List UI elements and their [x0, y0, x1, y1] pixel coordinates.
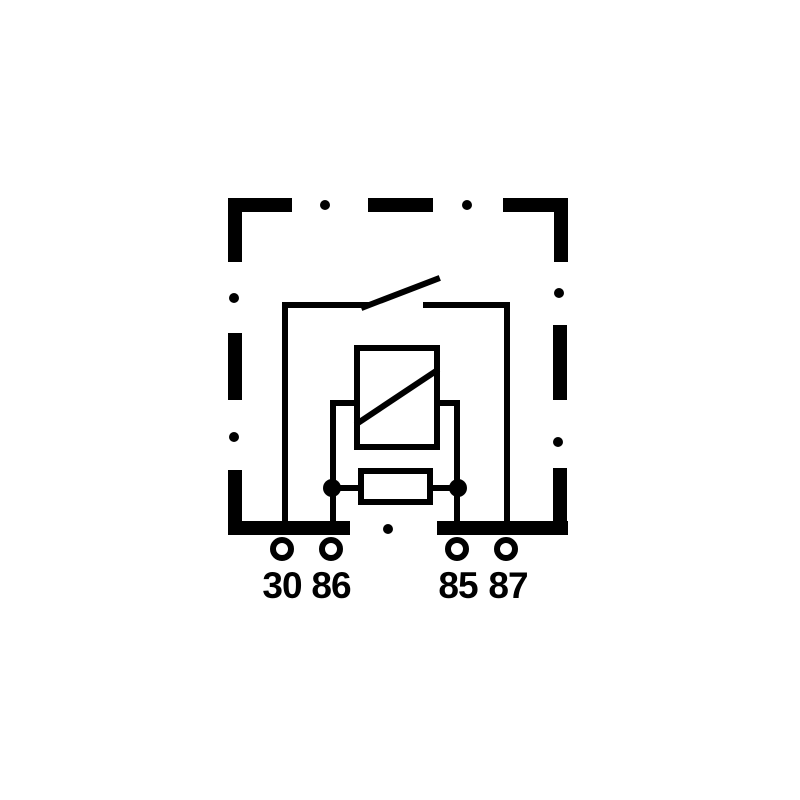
- border-right-dot-2: [553, 437, 563, 447]
- border-top-dot-2: [462, 200, 472, 210]
- border-left-dash: [228, 333, 242, 400]
- border-top-left-corner-vertical: [228, 198, 242, 262]
- terminal-circle-87: [497, 540, 515, 558]
- border-left-dot-1: [229, 293, 239, 303]
- border-top-dot-1: [320, 200, 330, 210]
- terminal-circle-86: [322, 540, 340, 558]
- junction-dot-left: [323, 479, 341, 497]
- terminal-labels: 30 86 85 87: [262, 565, 527, 606]
- coil-symbol: [357, 348, 437, 447]
- terminal-label-85: 85: [438, 565, 478, 606]
- relay-schematic-svg: 30 86 85 87: [0, 0, 800, 800]
- border-bottom-dot: [383, 524, 393, 534]
- border-right-dot-1: [554, 288, 564, 298]
- terminal-circle-85: [448, 540, 466, 558]
- border-top-dash: [368, 198, 433, 212]
- terminal-circle-30: [273, 540, 291, 558]
- wire-terminal-86-to-coil: [333, 403, 357, 528]
- wire-terminal-30-to-switch: [285, 305, 366, 528]
- resistor-box: [361, 471, 430, 502]
- border-left-dot-2: [229, 432, 239, 442]
- terminal-label-30: 30: [262, 565, 302, 606]
- terminal-pins: [273, 540, 515, 558]
- terminal-label-87: 87: [488, 565, 527, 606]
- terminal-label-86: 86: [311, 565, 351, 606]
- relay-schematic-canvas: 30 86 85 87: [0, 0, 800, 800]
- junction-dot-right: [449, 479, 467, 497]
- border-right-dash: [553, 325, 567, 400]
- border-top-right-corner-vertical: [554, 198, 568, 262]
